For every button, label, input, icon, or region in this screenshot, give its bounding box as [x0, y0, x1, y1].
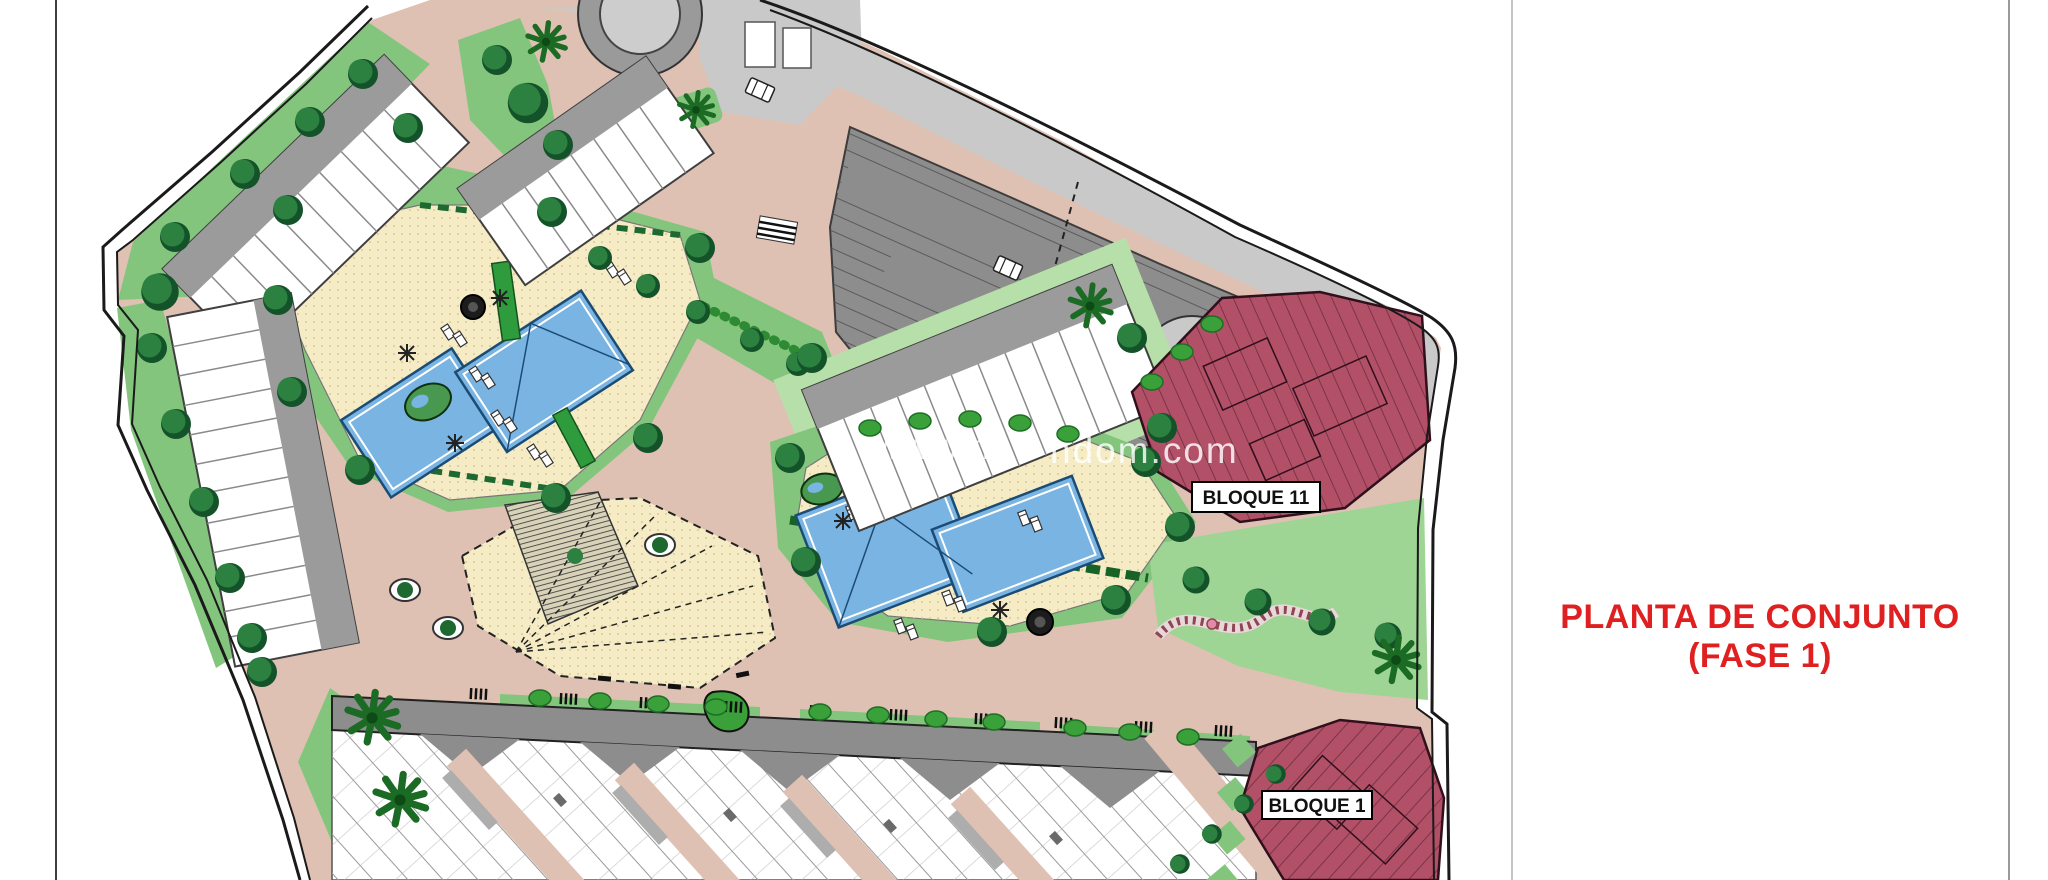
svg-text:www.m: www.m	[873, 426, 1003, 467]
svg-text:BLOQUE 11: BLOQUE 11	[1203, 488, 1310, 509]
site-plan-map: BLOQUE 11 BLOQUE 1 www.m ndom.com	[0, 0, 2048, 880]
svg-text:BLOQUE 1: BLOQUE 1	[1268, 796, 1366, 817]
bloque-11-label: BLOQUE 11	[1192, 482, 1320, 512]
plan-title-line2: (FASE 1)	[1520, 637, 2000, 676]
bloque-1-label: BLOQUE 1	[1262, 791, 1372, 819]
top-building-unit	[783, 28, 811, 68]
plan-title-line1: PLANTA DE CONJUNTO	[1520, 598, 2000, 637]
watermark: www.m ndom.com	[873, 426, 1239, 471]
building-complex-south	[332, 696, 1314, 880]
top-building-unit	[745, 22, 775, 67]
plan-title: PLANTA DE CONJUNTO (FASE 1)	[1520, 598, 2000, 676]
site-plan-sheet: BLOQUE 11 BLOQUE 1 www.m ndom.com PLANTA…	[0, 0, 2048, 880]
svg-text:ndom.com: ndom.com	[1050, 430, 1239, 471]
